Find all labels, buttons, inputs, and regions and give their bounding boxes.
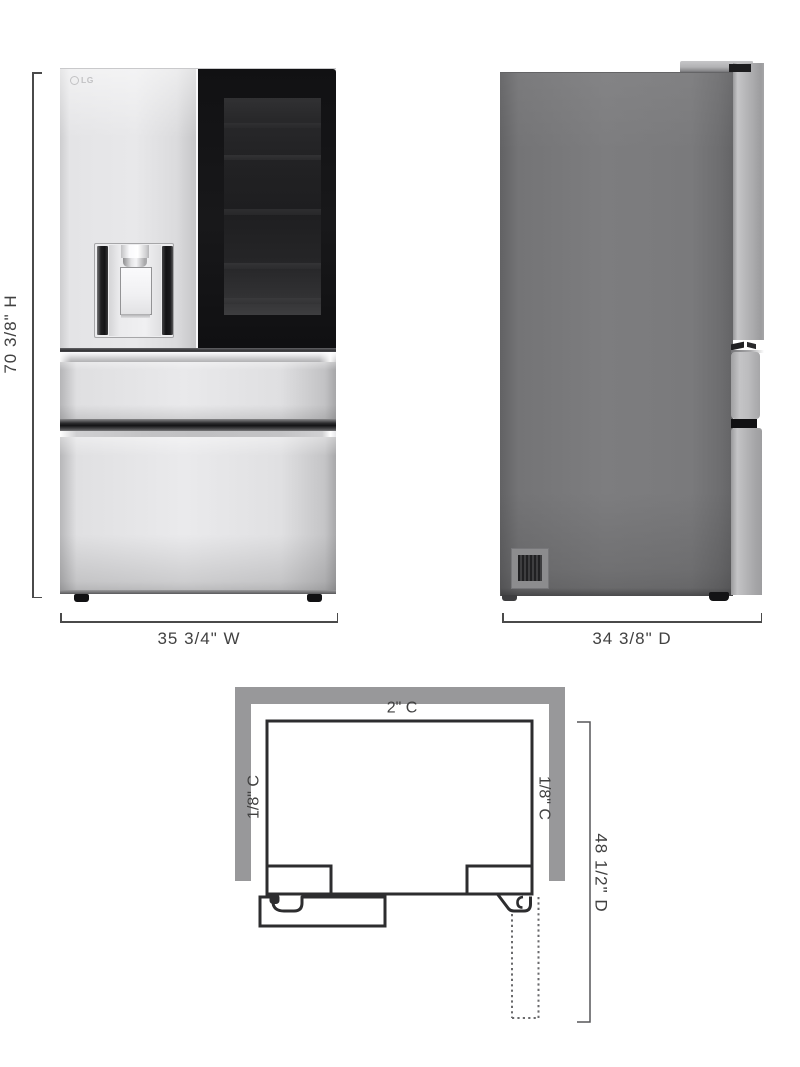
svg-text:1/8" C: 1/8" C [536, 776, 553, 820]
svg-text:1/8" C: 1/8" C [246, 775, 263, 819]
svg-text:2" C: 2" C [387, 700, 418, 717]
svg-text:48 1/2" D: 48 1/2" D [592, 833, 611, 912]
